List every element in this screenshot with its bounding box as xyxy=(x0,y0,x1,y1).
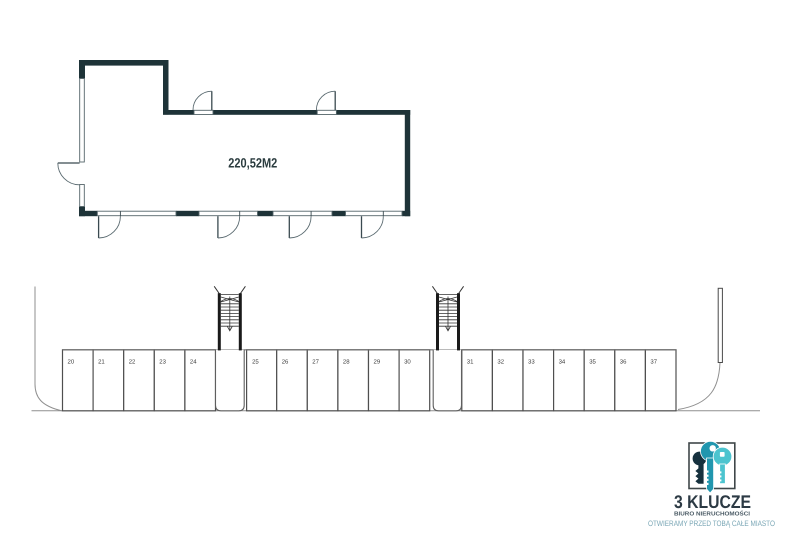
svg-text:31: 31 xyxy=(467,359,474,366)
svg-text:28: 28 xyxy=(343,359,350,366)
svg-text:24: 24 xyxy=(190,359,197,366)
svg-text:25: 25 xyxy=(252,359,259,366)
svg-text:21: 21 xyxy=(98,359,105,366)
svg-text:30: 30 xyxy=(404,359,411,366)
svg-text:220,52M2: 220,52M2 xyxy=(228,155,277,170)
svg-text:OTWIERAMY PRZED TOBĄ CAŁE MIAS: OTWIERAMY PRZED TOBĄ CAŁE MIASTO xyxy=(648,519,775,528)
svg-text:34: 34 xyxy=(559,359,566,366)
svg-text:26: 26 xyxy=(282,359,289,366)
svg-text:29: 29 xyxy=(374,359,381,366)
svg-text:36: 36 xyxy=(620,359,627,366)
svg-text:BIURO NIERUCHOMOŚCI: BIURO NIERUCHOMOŚCI xyxy=(674,510,750,518)
svg-text:27: 27 xyxy=(312,359,319,366)
svg-text:37: 37 xyxy=(650,359,657,366)
svg-text:33: 33 xyxy=(528,359,535,366)
svg-text:23: 23 xyxy=(159,359,166,366)
svg-text:20: 20 xyxy=(68,359,75,366)
svg-text:35: 35 xyxy=(589,359,596,366)
svg-text:22: 22 xyxy=(129,359,136,366)
svg-text:32: 32 xyxy=(497,359,504,366)
svg-text:3 KLUCZE: 3 KLUCZE xyxy=(674,491,751,512)
